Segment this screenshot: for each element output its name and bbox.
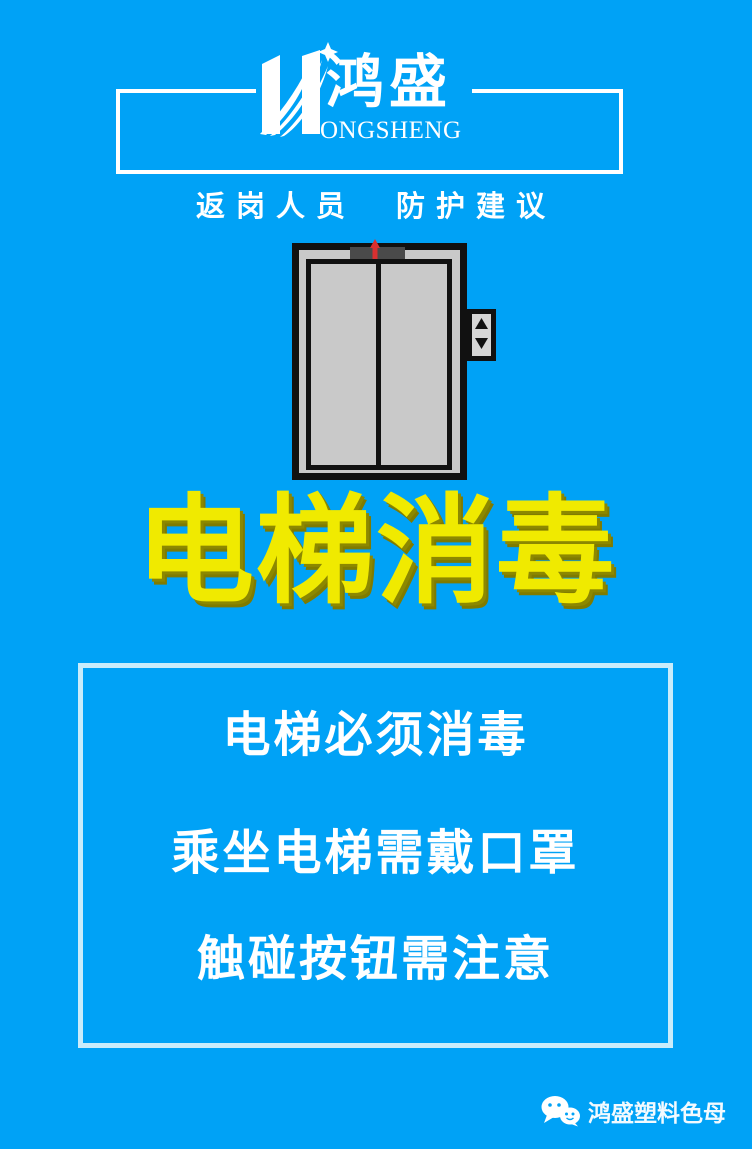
wechat-big-bubble-eye-right — [557, 1103, 561, 1107]
notice-line-3: 触碰按钮需注意 — [83, 936, 668, 984]
poster-title: 电梯消毒 — [0, 488, 752, 618]
notice-line-1: 电梯必须消毒 — [83, 712, 668, 760]
hongsheng-logo: 鸿盛 ONGSHENG — [256, 36, 472, 142]
brand-name-english: ONGSHENG — [320, 118, 462, 143]
notice-box: 电梯必须消毒 乘坐电梯需戴口罩 触碰按钮需注意 — [78, 663, 673, 1048]
wechat-small-bubble-eye-right — [572, 1113, 575, 1116]
watermark-text: 鸿盛塑料色母 — [588, 1094, 726, 1128]
wechat-small-bubble — [560, 1108, 580, 1125]
watermark: 鸿盛塑料色母 — [541, 1094, 726, 1128]
poster: 鸿盛 ONGSHENG 返岗人员 防护建议 电梯消毒 电梯必须消毒 乘坐电梯需戴… — [0, 0, 752, 1149]
wechat-icon — [541, 1095, 581, 1127]
wechat-big-bubble-eye-left — [548, 1103, 552, 1107]
notice-line-2: 乘坐电梯需戴口罩 — [83, 830, 668, 878]
poster-subtitle: 返岗人员 防护建议 — [0, 183, 752, 225]
wechat-small-bubble-eye-left — [565, 1113, 568, 1116]
brand-name-chinese: 鸿盛 — [326, 54, 452, 112]
elevator-illustration — [285, 238, 510, 483]
